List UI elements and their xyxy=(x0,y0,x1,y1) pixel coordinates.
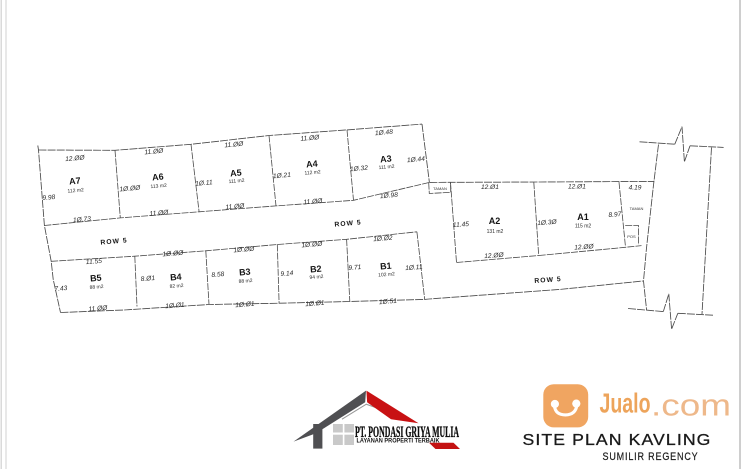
svg-text:1Ø.3Ø: 1Ø.3Ø xyxy=(537,219,558,227)
svg-text:9.14: 9.14 xyxy=(280,270,294,278)
svg-text:B5: B5 xyxy=(90,273,102,284)
svg-text:A4: A4 xyxy=(306,159,318,170)
svg-text:12.Ø1: 12.Ø1 xyxy=(481,184,499,191)
svg-text:88 m2: 88 m2 xyxy=(89,284,104,291)
svg-text:4.19: 4.19 xyxy=(629,185,642,192)
svg-text:8.Ø1: 8.Ø1 xyxy=(141,275,156,283)
svg-text:11.45: 11.45 xyxy=(453,221,470,229)
svg-text:POS: POS xyxy=(627,234,636,239)
svg-text:82 m2: 82 m2 xyxy=(169,283,184,290)
svg-text:94 m2: 94 m2 xyxy=(309,274,324,281)
svg-text:9.98: 9.98 xyxy=(42,194,56,202)
svg-text:131 m2: 131 m2 xyxy=(487,229,504,235)
svg-text:9.71: 9.71 xyxy=(348,264,362,272)
svg-text:12.ØØ: 12.ØØ xyxy=(574,243,595,251)
svg-text:B4: B4 xyxy=(170,272,182,283)
svg-text:SITE PLAN KAVLING: SITE PLAN KAVLING xyxy=(523,432,712,449)
svg-text:7.43: 7.43 xyxy=(54,285,68,293)
svg-text:11.55: 11.55 xyxy=(86,258,103,266)
svg-text:A2: A2 xyxy=(489,216,501,226)
svg-text:B3: B3 xyxy=(239,267,251,278)
svg-text:1Ø.51: 1Ø.51 xyxy=(379,298,398,306)
svg-text:12.Ø1: 12.Ø1 xyxy=(568,184,586,191)
svg-text:A1: A1 xyxy=(577,212,589,222)
svg-text:A6: A6 xyxy=(152,172,164,183)
svg-text:TAMAN: TAMAN xyxy=(630,206,644,211)
svg-text:LAYANAN PROPERTI TERBAIK: LAYANAN PROPERTI TERBAIK xyxy=(357,439,441,445)
svg-text:1Ø.11: 1Ø.11 xyxy=(405,264,423,272)
svg-text:A5: A5 xyxy=(230,168,242,179)
svg-text:88 m2: 88 m2 xyxy=(238,278,253,285)
svg-text:SUMILIR REGENCY: SUMILIR REGENCY xyxy=(603,451,699,463)
svg-text:TAMAN: TAMAN xyxy=(433,186,447,191)
svg-text:.com: .com xyxy=(651,388,731,423)
svg-text:Jualo: Jualo xyxy=(600,387,651,418)
svg-text:A3: A3 xyxy=(380,154,392,165)
svg-text:8.97: 8.97 xyxy=(608,211,622,219)
svg-text:A7: A7 xyxy=(69,176,81,187)
svg-text:B2: B2 xyxy=(310,264,322,275)
svg-text:8.58: 8.58 xyxy=(211,271,225,279)
svg-text:B1: B1 xyxy=(380,261,392,272)
svg-text:115 m2: 115 m2 xyxy=(575,224,592,230)
svg-text:12.ØØ: 12.ØØ xyxy=(484,252,505,260)
